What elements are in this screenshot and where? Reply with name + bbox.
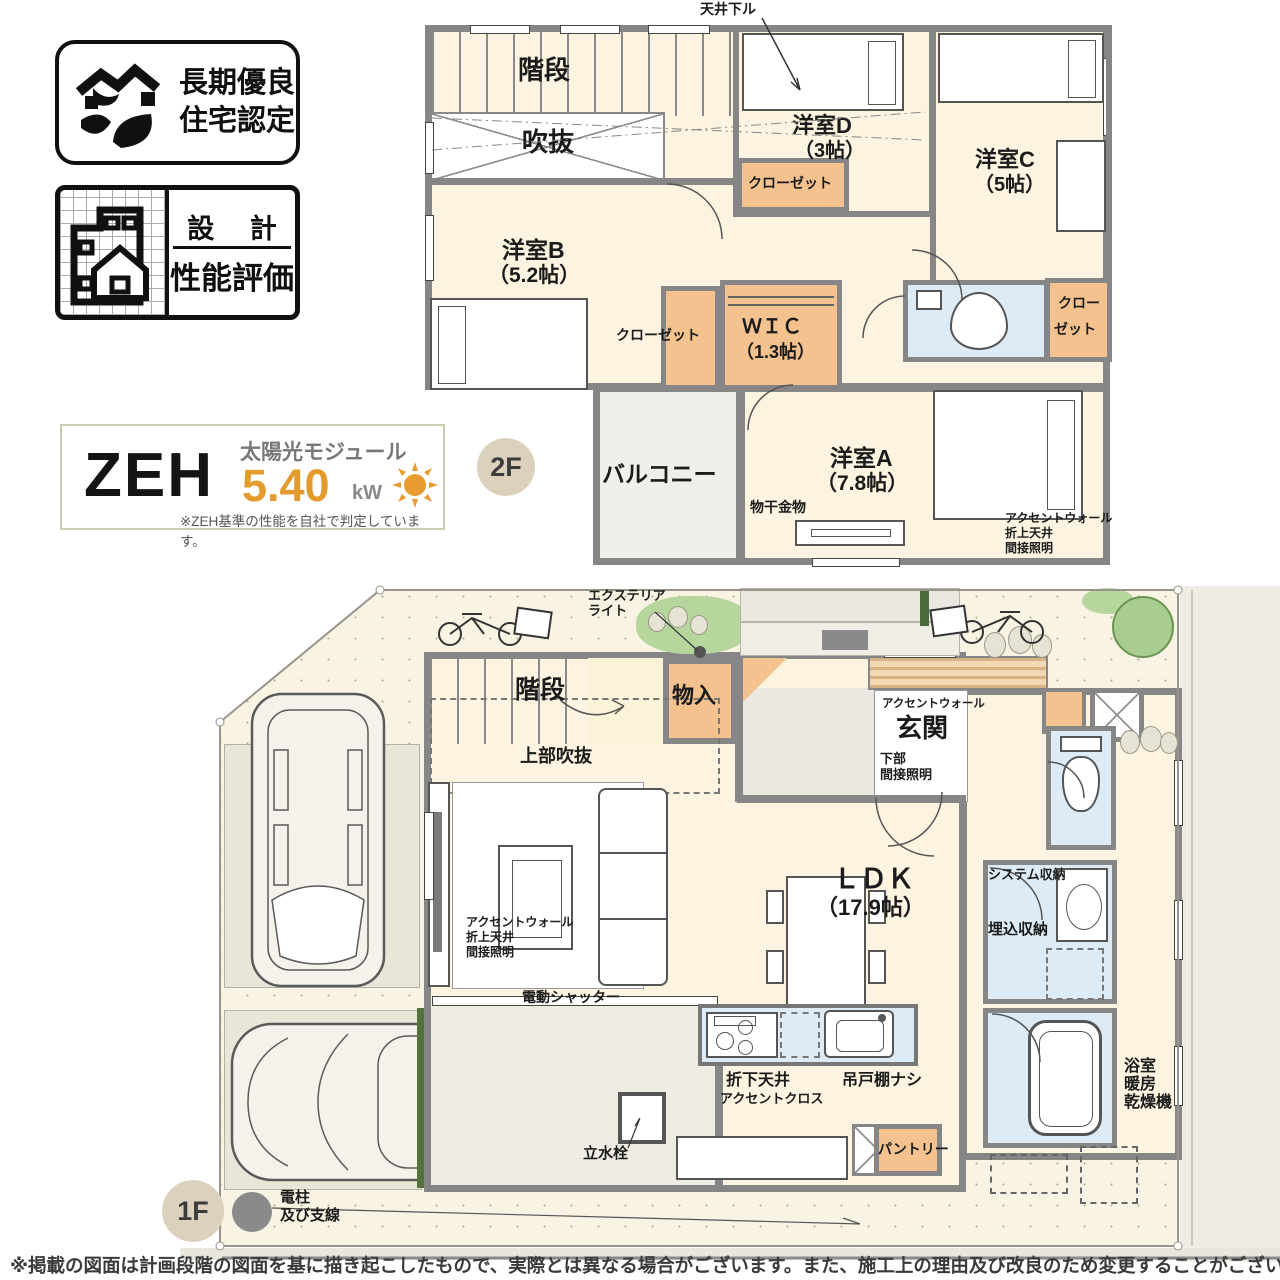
stairs-1f-label: 階段 [515,676,565,704]
bath-dryer-label1: 浴室 [1124,1058,1156,1076]
ldk-size-label: （17.9帖） [816,896,925,921]
lowered-ceiling-label2: アクセントクロス [720,1092,823,1107]
pole-label1: 電柱 [280,1190,310,1207]
shutter-label: 電動シャッター [522,990,620,1006]
floorplan-sheet: 長期優良 住宅認定 設 計 性能評価 ZEH 太陽光モジュール 5.40 kW [0,0,1280,1280]
floor1-badge: 1F [162,1180,224,1242]
system-storage-label: システム収納 [988,868,1066,883]
living-accent-label2: 折上天井 [466,931,514,944]
tap-label: 立水栓 [583,1146,628,1163]
entrance-accent-label: アクセントウォール [882,698,985,711]
pole-label2: 及び支線 [280,1208,340,1225]
ldk-label: ＬＤＫ [833,864,914,894]
entrance-label: 玄関 [896,714,948,743]
linework-overlay [0,0,1280,1280]
living-accent-label3: 間接照明 [466,946,514,959]
living-accent-label1: アクセントウォール [466,916,573,929]
lowered-ceiling-label1: 折下天井 [726,1072,790,1090]
storage-label: 物入 [672,684,716,709]
built-in-storage-label: 埋込収納 [988,922,1048,939]
bath-dryer-label2: 暖房 [1124,1076,1156,1094]
exterior-light-label2: ライト [588,604,627,619]
no-cabinet-label: 吊戸棚ナシ [842,1072,922,1090]
entrance-lower-label2: 間接照明 [880,768,932,783]
exterior-light-label1: エクステリア [588,589,666,604]
upper-void-label: 上部吹抜 [520,746,592,766]
pantry-label: パントリー [878,1142,949,1158]
bath-dryer-label3: 乾燥機 [1124,1094,1172,1112]
disclaimer-text: ※掲載の図面は計画段階の図面を基に描き起こしたもので、実際とは異なる場合がござい… [10,1256,1280,1277]
entrance-lower-label1: 下部 [880,752,906,767]
